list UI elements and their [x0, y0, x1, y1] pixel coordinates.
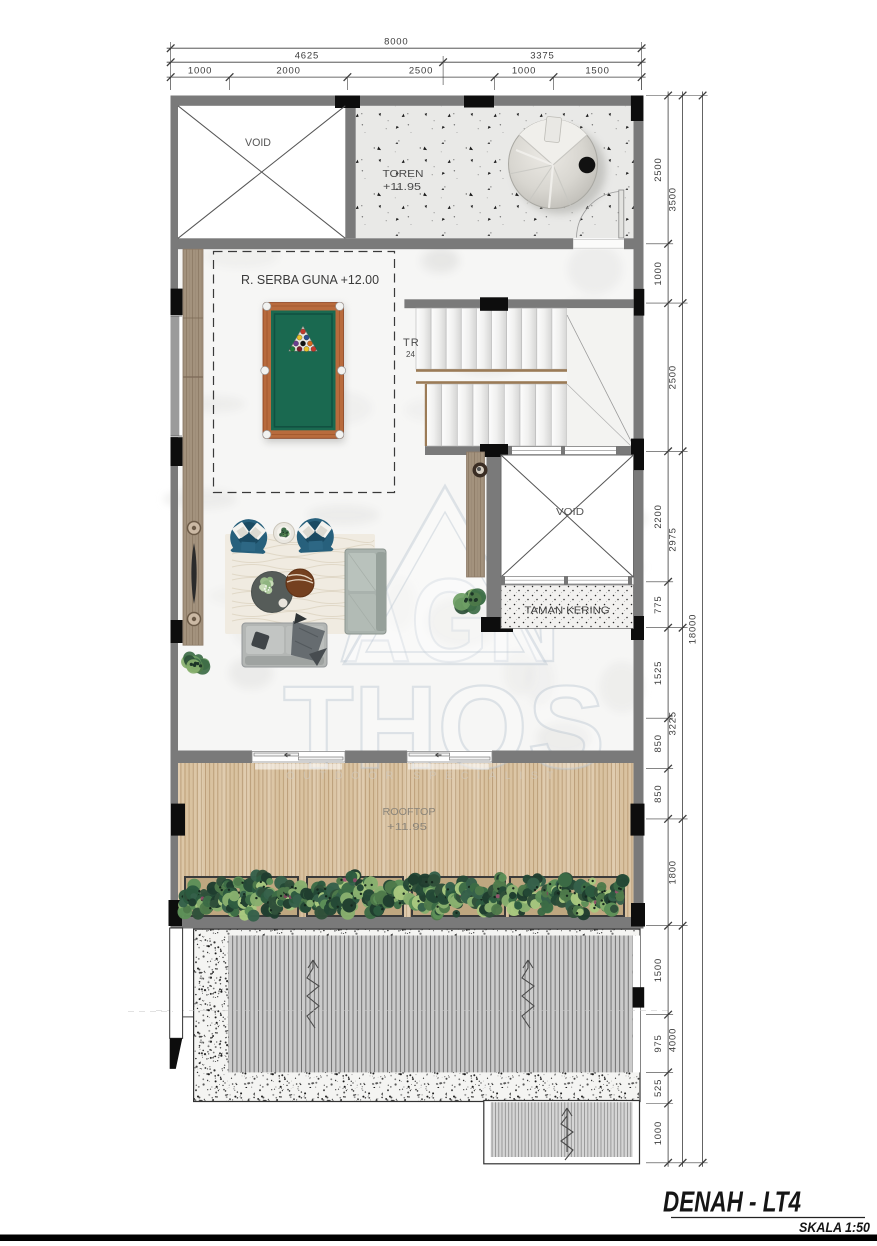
svg-text:525: 525	[653, 1079, 664, 1097]
svg-text:+11.95: +11.95	[387, 821, 427, 833]
svg-text:ROOFTOP: ROOFTOP	[383, 806, 436, 818]
svg-text:3375: 3375	[530, 51, 554, 62]
svg-text:18000: 18000	[688, 614, 699, 644]
svg-text:2500: 2500	[653, 157, 664, 181]
svg-text:2500: 2500	[668, 365, 679, 389]
svg-text:DENAH - LT4: DENAH - LT4	[663, 1187, 801, 1219]
svg-text:3500: 3500	[668, 187, 679, 211]
svg-text:850: 850	[653, 734, 664, 752]
svg-text:24: 24	[406, 350, 415, 359]
svg-text:1000: 1000	[653, 1121, 664, 1145]
svg-text:VOID: VOID	[245, 137, 271, 149]
svg-text:TOREN: TOREN	[383, 169, 424, 180]
svg-text:1000: 1000	[653, 261, 664, 285]
svg-text:3225: 3225	[668, 711, 679, 735]
svg-text:2975: 2975	[668, 527, 679, 551]
svg-text:1800: 1800	[668, 860, 679, 884]
svg-text:SKALA 1:50: SKALA 1:50	[799, 1219, 870, 1235]
svg-text:1000: 1000	[512, 65, 536, 76]
svg-text:R. SERBA GUNA +12.00: R. SERBA GUNA +12.00	[241, 273, 379, 287]
svg-text:OUTDOOR SPECIALIST: OUTDOOR SPECIALIST	[286, 770, 562, 782]
svg-text:1500: 1500	[653, 958, 664, 982]
svg-text:1525: 1525	[653, 661, 664, 685]
svg-text:4000: 4000	[668, 1028, 679, 1052]
svg-text:TR: TR	[403, 337, 420, 349]
svg-text:4625: 4625	[295, 51, 319, 62]
svg-text:+11.95: +11.95	[383, 182, 422, 193]
svg-text:775: 775	[653, 596, 664, 614]
svg-text:975: 975	[653, 1034, 664, 1052]
svg-text:2200: 2200	[653, 504, 664, 528]
svg-text:1000: 1000	[188, 65, 212, 76]
svg-text:1500: 1500	[585, 65, 609, 76]
svg-text:2000: 2000	[276, 65, 300, 76]
svg-text:TAMAN KERING: TAMAN KERING	[525, 606, 610, 617]
svg-text:8000: 8000	[384, 37, 408, 48]
svg-text:2500: 2500	[409, 65, 433, 76]
svg-text:850: 850	[653, 785, 664, 803]
svg-text:VOID: VOID	[556, 506, 584, 518]
